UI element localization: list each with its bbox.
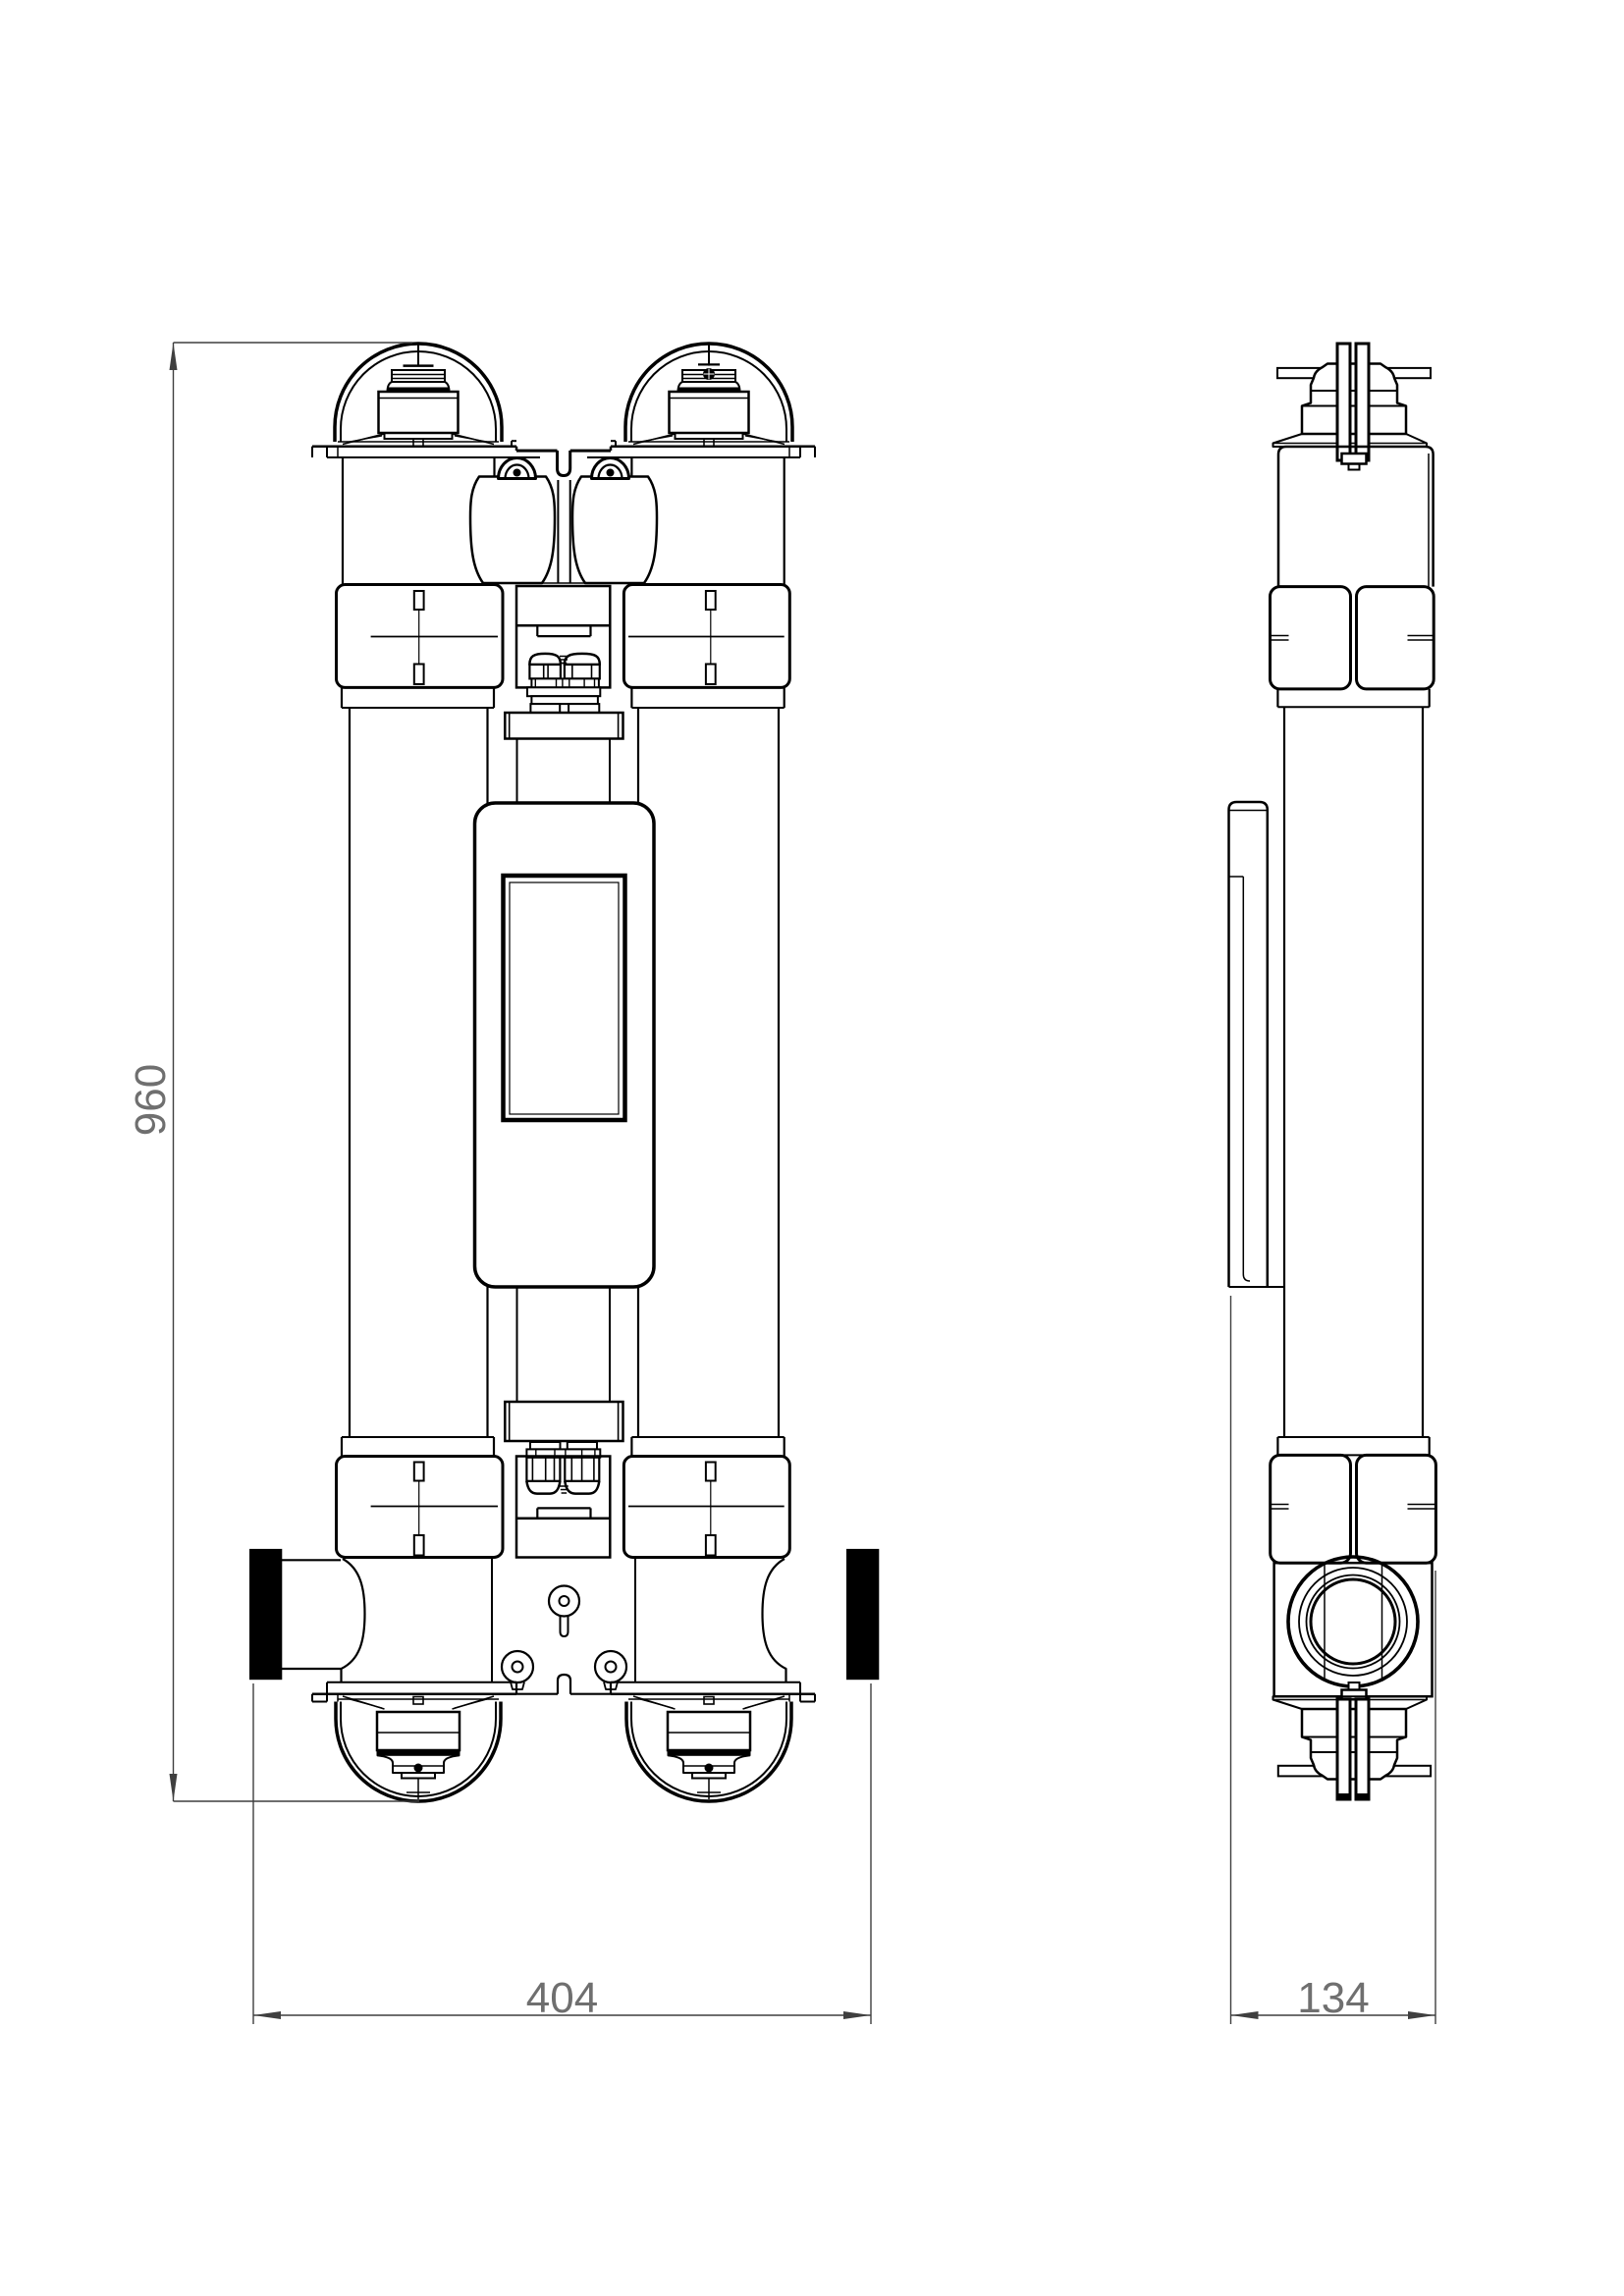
svg-text:134: 134: [1297, 1974, 1369, 2022]
svg-text:960: 960: [127, 1064, 175, 1136]
svg-text:404: 404: [526, 1974, 598, 2022]
